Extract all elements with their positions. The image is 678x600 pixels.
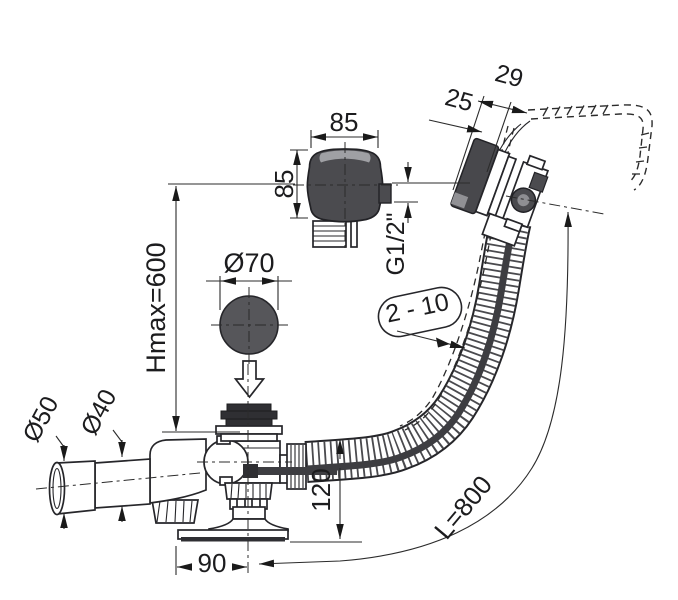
label-knob-width: 85 (330, 107, 359, 137)
label-plug-diameter: Ø70 (223, 248, 274, 278)
label-base-height: 120 (306, 468, 336, 511)
dimension-2-10-range: 2 - 10 (375, 284, 465, 348)
cable-connector (243, 464, 258, 478)
base-gasket (181, 537, 285, 542)
label-outlet-pipe-diameter: Ø40 (75, 385, 122, 440)
label-rim-offset-inner: 25 (442, 83, 476, 117)
overflow-fitting (445, 136, 553, 249)
knob-side-nipple (379, 184, 391, 203)
technical-drawing: 85 85 G1/2" Hmax=600 Ø70 29 (0, 0, 678, 600)
dimension-85-width: 85 (311, 107, 378, 148)
waste-plug-cap (216, 404, 282, 441)
dimension-90: 90 (176, 546, 247, 578)
label-thread-size: G1/2" (382, 212, 410, 275)
label-base-offset: 90 (198, 548, 227, 578)
outlet-pipe (95, 459, 150, 508)
knob-pin (351, 220, 357, 247)
elbow (150, 439, 206, 503)
diagram-canvas: 85 85 G1/2" Hmax=600 Ø70 29 (0, 0, 678, 600)
flow-arrow-icon (236, 361, 264, 397)
knob-thread (313, 221, 346, 247)
label-height-max: Hmax=600 (141, 242, 171, 373)
sleeve-end (50, 463, 65, 515)
siphon-outlet-pipe (50, 439, 207, 523)
control-knob (307, 149, 391, 247)
label-rim-offset-outer: 29 (492, 59, 526, 93)
label-hose-length: L=800 (428, 470, 498, 545)
